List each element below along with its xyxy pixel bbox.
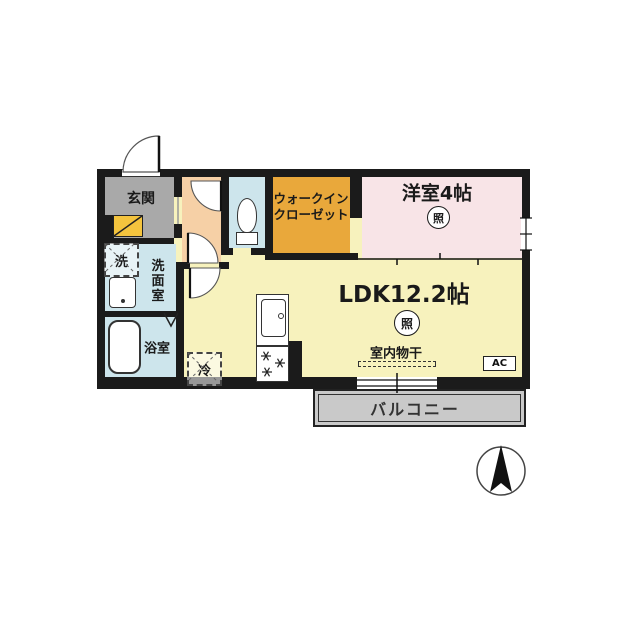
bedroom-light-char: 照 [433, 210, 444, 226]
washroom-label: 洗面室 [147, 259, 166, 304]
ldk-light-char: 照 [401, 315, 413, 332]
bedroom-label: 洋室4帖 [402, 179, 472, 206]
ac-unit-label: AC [492, 358, 507, 369]
north-compass [477, 445, 525, 495]
front-door-opening [122, 169, 160, 177]
refrigerator-space: 冷 [187, 352, 222, 386]
kitchen-sink-unit [256, 294, 289, 346]
walk-in-closet-label-line1: ウォークイン [273, 191, 348, 207]
genkan-label: 玄関 [127, 188, 155, 208]
wall-hall-ldk-right [219, 262, 229, 269]
washbasin [109, 277, 136, 308]
wall-genkan-hall-lower [174, 224, 182, 238]
toilet-bowl [237, 198, 257, 233]
wall-washroom-bath [105, 311, 176, 317]
wall-left [97, 169, 105, 389]
shoe-cabinet [113, 215, 143, 237]
bathtub [108, 320, 141, 374]
bath-label: 浴室 [144, 338, 170, 357]
toilet-tank [236, 232, 258, 245]
kitchen-stove [256, 346, 289, 382]
wall-hall-toilet [221, 177, 229, 255]
ac-unit-box: AC [483, 356, 516, 371]
indoor-laundry-rail [358, 361, 436, 367]
wall-right [522, 169, 530, 389]
wall-genkan-hall-upper [174, 177, 182, 197]
wall-toilet-bottom-a [229, 248, 233, 255]
balcony-label: バルコニー [370, 396, 460, 420]
wall-toilet-bottom-b [251, 248, 265, 255]
ldk-light-symbol: 照 [394, 310, 420, 336]
walk-in-closet-label-line2: クローゼット [273, 207, 348, 223]
wall-wic-bottom [265, 253, 358, 260]
wall-hall-ldk-left [176, 262, 190, 269]
washing-machine-space: 洗 [104, 243, 139, 277]
bedroom-window [521, 218, 531, 250]
front-door-swing [123, 136, 159, 172]
wall-toilet-wic [265, 177, 273, 260]
wall-top [160, 169, 530, 177]
ldk-label: LDK12.2帖 [338, 275, 469, 309]
indoor-laundry-label: 室内物干 [370, 343, 422, 362]
wall-leftblock-ldk [176, 263, 184, 389]
wall-wic-bedroom [350, 177, 362, 218]
bedroom-light-symbol: 照 [427, 206, 450, 229]
balcony-sliding-window [357, 377, 437, 389]
floor-plan-page: 洗 冷 AC 照 照 玄関 洗面室 浴室 ウォークイン クローゼット 洋室4帖 … [0, 0, 640, 640]
kitchen-sink-basin [261, 299, 286, 337]
washing-machine-label: 洗 [115, 251, 128, 270]
hallway-floor [182, 177, 221, 262]
refrigerator-label: 冷 [198, 360, 211, 379]
wall-kitchen-stub [288, 341, 302, 389]
wall-bottom [97, 377, 530, 389]
walk-in-closet-label: ウォークイン クローゼット [273, 191, 348, 224]
